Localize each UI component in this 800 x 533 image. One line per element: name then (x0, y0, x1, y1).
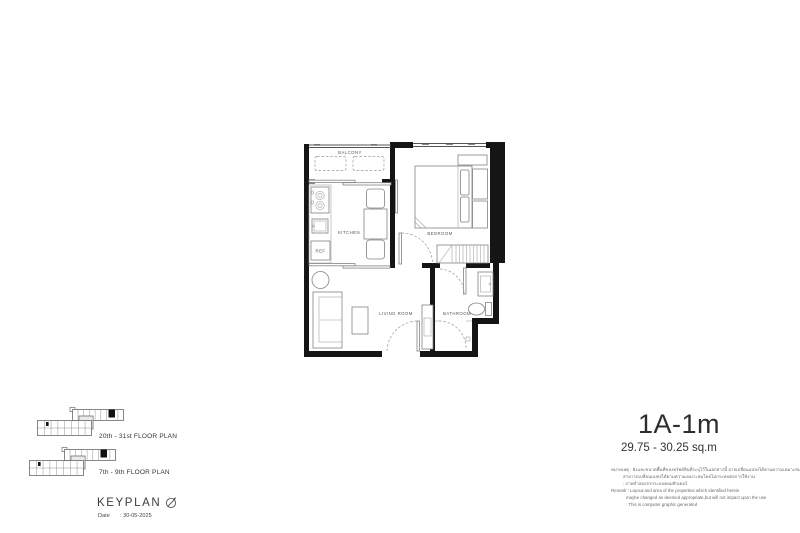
kitchen-label: KITCHEN (338, 230, 360, 235)
date-label: Date (98, 513, 120, 519)
wardrobe (437, 245, 488, 263)
floor-drain (466, 337, 470, 341)
balcony-label: BALCONY (338, 150, 362, 155)
remark-th-1: หมายเหตุ : ผังและขนาดพื้นที่ของทรัพย์สิน… (611, 466, 793, 473)
date-value: : 30-05-2025 (120, 513, 152, 519)
remark-th-2: สามารถเปลี่ยนแปลงได้ตามความเหมาะสมโดยไม่… (611, 473, 793, 480)
remark-th-3: : ภาพจำลองจากระบบคอมพิวเตอร์ (611, 480, 793, 487)
remark-en-1: Remark : Layout and area of the properti… (611, 487, 793, 494)
unit-name: 1A-1m (638, 409, 720, 440)
dining-chair (367, 240, 385, 259)
remarks-block: หมายเหตุ : ผังและขนาดพื้นที่ของทรัพย์สิน… (611, 466, 793, 509)
pillow (461, 197, 470, 222)
sink-vanity (478, 272, 493, 296)
bathroom-label: BATHROOM (443, 311, 471, 316)
coffee-table (352, 307, 368, 334)
balcony-furniture (315, 157, 384, 171)
bedroom-furniture (415, 155, 488, 263)
living-room-label: LIVING ROOM (379, 311, 413, 316)
page: { "unit": { "name": "1A-1m", "area": "29… (0, 0, 800, 533)
bedroom-label: BEDROOM (427, 231, 452, 236)
keyplan-date-row: Date : 30-05-2025 (98, 513, 152, 519)
ref-label: REF (316, 249, 326, 254)
remark-en-2: maybe changed as deemed appropriate,but … (611, 494, 793, 501)
north-arrow-icon (165, 496, 178, 509)
remark-en-3: : This is computer graphic generated (611, 501, 793, 508)
dining-table (364, 209, 387, 239)
tv-cabinet (422, 305, 433, 349)
highlighted-unit (101, 450, 108, 458)
toilet (469, 303, 492, 316)
floor-plan-label-upper: 20th - 31st FLOOR PLAN (99, 433, 177, 440)
bathroom-fixtures (466, 272, 493, 341)
highlighted-unit (109, 410, 116, 418)
keyplan-title: KEYPLAN (97, 497, 161, 509)
floor-plan-label-lower: 7th - 9th FLOOR PLAN (99, 469, 170, 476)
unit-floor-plan: BALCONY KITCHEN BEDROOM LIVING ROOM BATH… (300, 133, 512, 370)
keyplan-heading-row: KEYPLAN (97, 496, 178, 509)
sofa (313, 292, 342, 348)
living-furniture (312, 272, 433, 350)
unit-area: 29.75 - 30.25 sq.m (621, 442, 717, 454)
pillow (461, 170, 470, 195)
dining-chair (367, 189, 385, 208)
